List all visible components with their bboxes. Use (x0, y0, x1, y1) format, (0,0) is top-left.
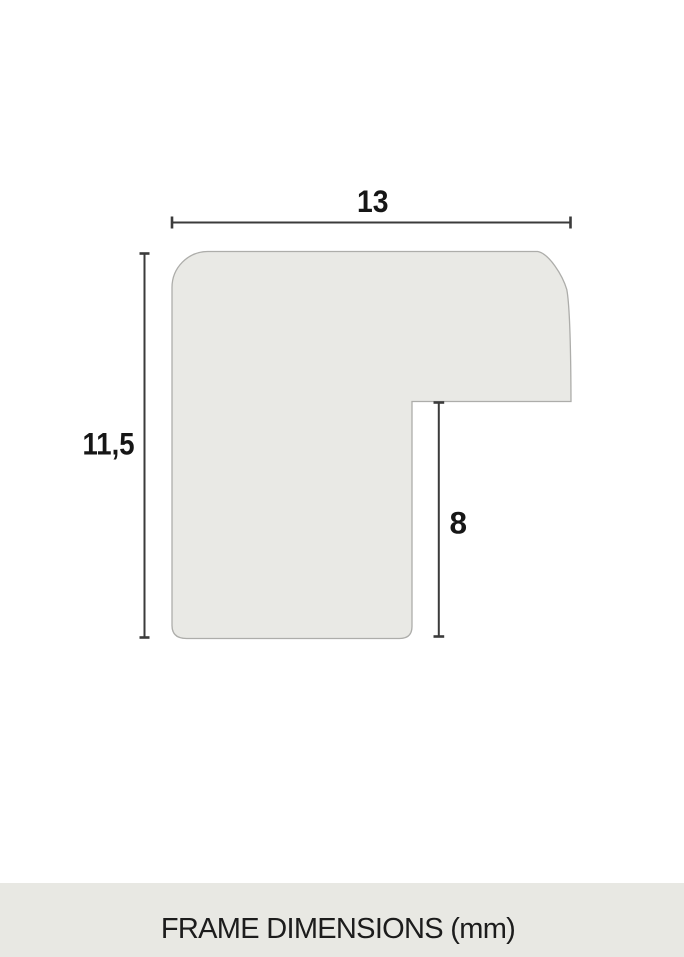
svg-text:11,5: 11,5 (83, 426, 135, 462)
svg-text:8: 8 (450, 505, 468, 541)
svg-text:13: 13 (357, 183, 389, 219)
